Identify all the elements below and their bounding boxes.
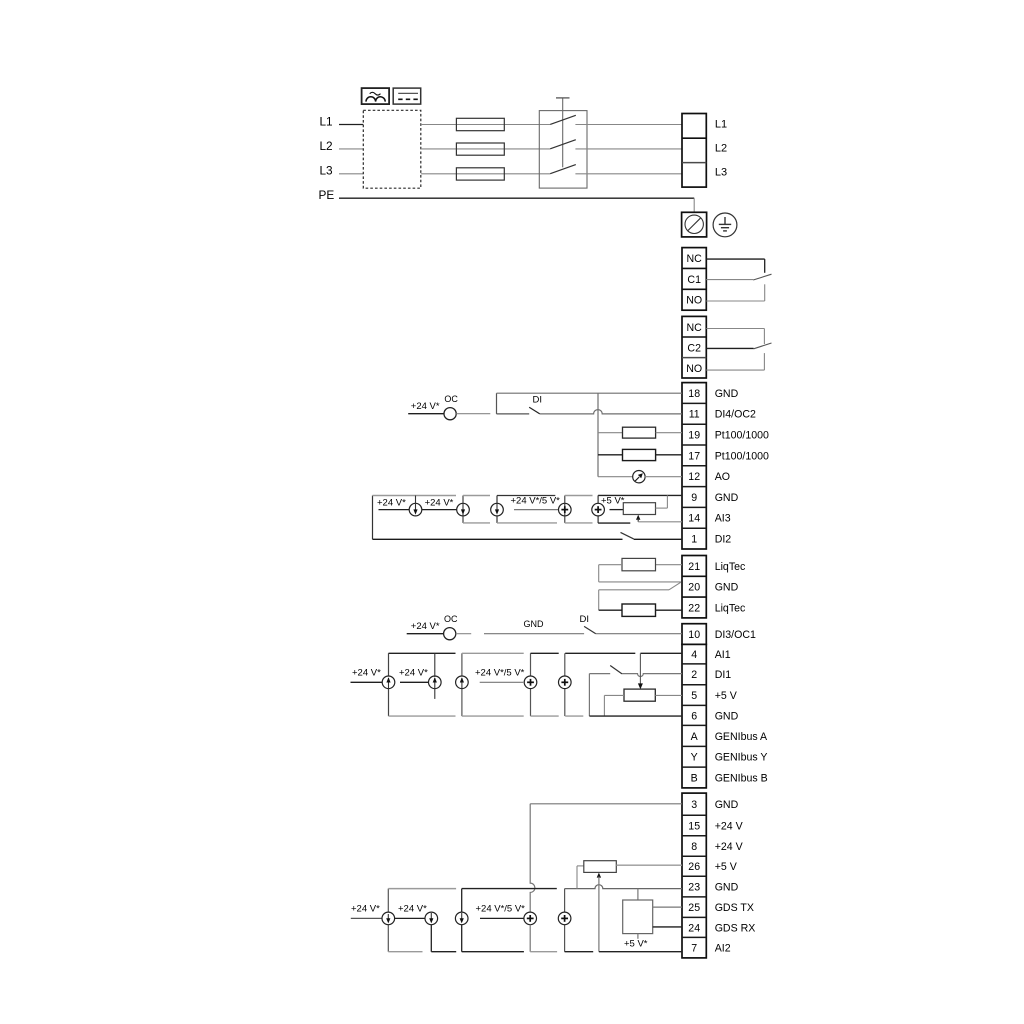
svg-text:L3: L3 <box>715 167 727 179</box>
svg-text:+24 V*: +24 V* <box>351 904 380 915</box>
svg-text:AI2: AI2 <box>715 943 731 955</box>
svg-text:23: 23 <box>688 882 700 894</box>
svg-text:+5 V*: +5 V* <box>601 496 625 507</box>
svg-text:DI: DI <box>580 614 590 625</box>
svg-text:A: A <box>691 731 699 743</box>
svg-text:AI3: AI3 <box>715 513 731 525</box>
svg-text:GND: GND <box>715 492 739 504</box>
svg-text:+24 V: +24 V <box>715 820 744 832</box>
svg-text:GND: GND <box>715 388 739 400</box>
svg-text:Pt100/1000: Pt100/1000 <box>715 450 769 462</box>
svg-text:+24 V*: +24 V* <box>425 498 454 509</box>
svg-text:25: 25 <box>688 902 700 914</box>
svg-text:+24 V*: +24 V* <box>377 498 406 509</box>
svg-text:GND: GND <box>715 882 739 894</box>
svg-text:L1: L1 <box>715 119 727 131</box>
svg-text:DI2: DI2 <box>715 534 732 546</box>
svg-text:+24 V: +24 V <box>715 841 744 853</box>
svg-text:B: B <box>691 772 698 784</box>
svg-text:PE: PE <box>319 188 335 202</box>
svg-text:24: 24 <box>688 922 700 934</box>
svg-text:26: 26 <box>688 861 700 873</box>
svg-text:4: 4 <box>691 649 697 661</box>
svg-text:L2: L2 <box>320 139 333 153</box>
svg-text:Pt100/1000: Pt100/1000 <box>715 430 769 442</box>
svg-text:DI3/OC1: DI3/OC1 <box>715 629 756 641</box>
svg-text:17: 17 <box>688 450 700 462</box>
svg-text:14: 14 <box>688 513 700 525</box>
svg-text:LiqTec: LiqTec <box>715 561 746 573</box>
svg-text:L3: L3 <box>320 164 334 178</box>
svg-text:8: 8 <box>691 841 697 853</box>
svg-text:+5 V: +5 V <box>715 690 738 702</box>
svg-text:+24 V*: +24 V* <box>399 667 428 678</box>
svg-text:+24 V*: +24 V* <box>352 667 381 678</box>
svg-text:NO: NO <box>686 363 702 375</box>
svg-text:5: 5 <box>691 690 697 702</box>
svg-text:GND: GND <box>715 799 739 811</box>
svg-text:C1: C1 <box>687 274 701 286</box>
svg-text:OC: OC <box>444 394 458 404</box>
svg-text:+24 V*: +24 V* <box>411 401 440 412</box>
svg-text:2: 2 <box>691 669 697 681</box>
svg-text:GENIbus B: GENIbus B <box>715 772 768 784</box>
svg-text:GDS TX: GDS TX <box>715 902 754 914</box>
svg-text:DI: DI <box>533 395 543 406</box>
svg-text:+24 V*/5 V*: +24 V*/5 V* <box>475 667 525 678</box>
svg-text:+24 V*: +24 V* <box>411 621 440 632</box>
svg-text:+5 V: +5 V <box>715 861 738 873</box>
svg-text:3: 3 <box>691 799 697 811</box>
svg-text:+24 V*/5 V*: +24 V*/5 V* <box>476 904 526 915</box>
svg-text:+5 V*: +5 V* <box>624 938 648 949</box>
svg-text:GENIbus A: GENIbus A <box>715 731 768 743</box>
svg-text:DI4/OC2: DI4/OC2 <box>715 409 756 421</box>
svg-text:DI1: DI1 <box>715 669 732 681</box>
svg-text:NC: NC <box>687 322 703 334</box>
svg-text:OC: OC <box>444 614 458 624</box>
svg-text:NC: NC <box>687 253 703 265</box>
svg-text:+24 V*: +24 V* <box>398 904 427 915</box>
svg-text:LiqTec: LiqTec <box>715 602 746 614</box>
svg-text:7: 7 <box>691 943 697 955</box>
svg-text:+24 V*/5 V*: +24 V*/5 V* <box>511 496 561 507</box>
svg-text:AI1: AI1 <box>715 649 731 661</box>
svg-text:20: 20 <box>688 582 700 594</box>
svg-text:GND: GND <box>715 710 739 722</box>
svg-text:L1: L1 <box>320 114 333 128</box>
svg-text:GND: GND <box>715 582 739 594</box>
svg-text:L2: L2 <box>715 142 727 154</box>
svg-text:21: 21 <box>688 561 700 573</box>
svg-text:6: 6 <box>691 710 697 722</box>
svg-text:22: 22 <box>688 602 700 614</box>
svg-text:C2: C2 <box>687 342 701 354</box>
svg-text:11: 11 <box>689 409 700 421</box>
svg-text:1: 1 <box>691 534 697 546</box>
svg-text:10: 10 <box>688 629 700 641</box>
svg-text:AO: AO <box>715 471 730 483</box>
svg-text:19: 19 <box>688 430 700 442</box>
svg-text:9: 9 <box>691 492 697 504</box>
svg-text:Y: Y <box>691 752 698 764</box>
svg-text:12: 12 <box>688 471 700 483</box>
svg-text:NO: NO <box>686 295 702 307</box>
svg-text:18: 18 <box>688 388 700 400</box>
svg-text:GND: GND <box>524 619 545 629</box>
svg-text:15: 15 <box>688 820 700 832</box>
svg-text:GENIbus Y: GENIbus Y <box>715 752 768 764</box>
svg-text:GDS RX: GDS RX <box>715 922 756 934</box>
